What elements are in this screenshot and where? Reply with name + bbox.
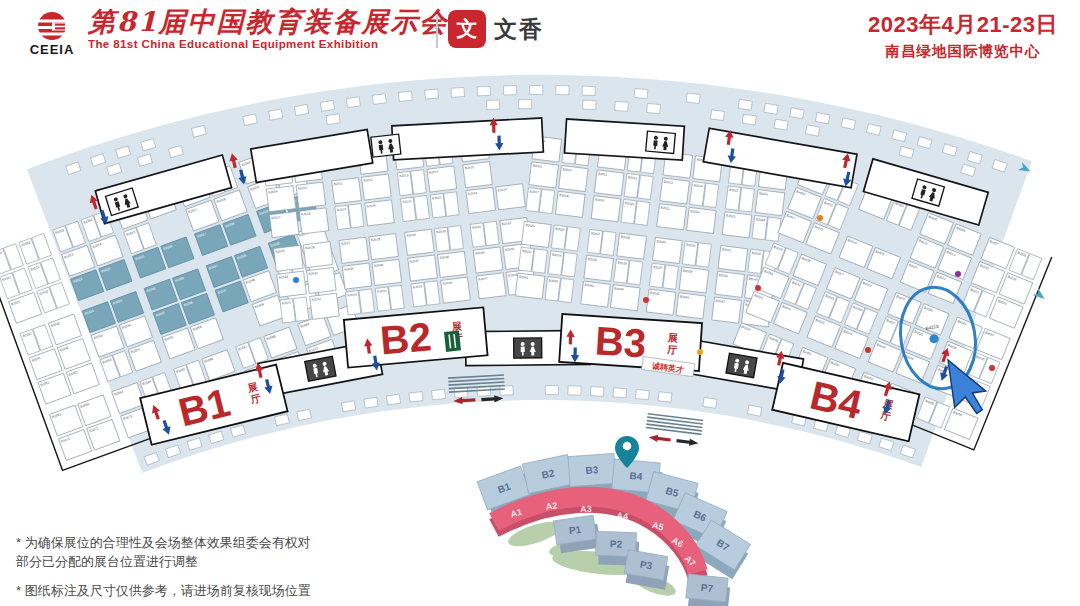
outer-large-booth	[392, 118, 544, 160]
exhibition-title-cn: 第81届中国教育装备展示会	[88, 8, 449, 36]
footnote-1-line1: * 为确保展位的合理性及会场整体效果组委会有权对	[16, 534, 311, 553]
svg-text:B3: B3	[585, 464, 599, 476]
inner-booth-strip	[454, 388, 468, 398]
booth-logo	[755, 285, 761, 291]
outer-booth-strip	[519, 100, 532, 109]
footnote-1-line2: 部分已分配的展台位置进行调整	[16, 553, 311, 572]
svg-text:B3: B3	[594, 318, 648, 365]
inner-booth-strip	[432, 389, 446, 399]
outer-booth-strip	[477, 86, 490, 96]
booth-logo	[989, 365, 995, 371]
exhibition-floorplan-page: CEEIA 第81届中国教育装备展示会 The 81st China Educa…	[0, 0, 1080, 606]
outer-booth-strip	[346, 97, 360, 108]
outer-booth-strip	[320, 100, 334, 111]
exhibition-title-en: The 81st China Educational Equipment Exh…	[88, 38, 449, 50]
booth-logo	[817, 215, 823, 221]
outer-booth-strip	[738, 99, 752, 110]
partner-name: 文香	[494, 14, 544, 45]
outer-booth-strip	[710, 110, 724, 121]
inner-booth-strip	[658, 392, 672, 402]
outer-booth-strip	[326, 114, 340, 125]
booth-logo	[293, 277, 299, 283]
outer-booth-strip	[615, 101, 628, 111]
inner-booth-strip	[500, 386, 513, 395]
overview-minimap: B1B2B3B4B5B6B7A1A2A3A4A5A6A7P1P2P3P7	[440, 430, 820, 606]
header-divider	[436, 16, 438, 48]
inner-booth-strip	[364, 397, 378, 408]
inner-booth-strip	[703, 397, 717, 408]
svg-text:展: 展	[667, 332, 679, 344]
footnotes: * 为确保展位的合理性及会场整体效果组委会有权对 部分已分配的展台位置进行调整 …	[16, 534, 311, 601]
inner-booth-strip	[477, 387, 490, 397]
outer-booth-strip	[582, 86, 595, 95]
minimap-block-P3: P3	[623, 550, 671, 590]
svg-text:P7: P7	[700, 582, 714, 594]
svg-text:P1: P1	[568, 524, 582, 537]
outer-booth-strip	[451, 88, 464, 98]
svg-text:A4: A4	[616, 510, 628, 521]
restroom-icon	[646, 131, 676, 153]
restroom-icon	[305, 356, 336, 381]
restroom-icon	[514, 338, 542, 358]
outer-booth-strip	[530, 85, 543, 94]
outer-booth-strip	[556, 86, 569, 95]
inner-booth-strip	[341, 401, 355, 412]
minimap-block-P1: P1	[554, 515, 601, 554]
booth-logo	[697, 349, 703, 355]
svg-text:B4: B4	[629, 470, 643, 482]
restroom-icon	[371, 134, 401, 157]
booth-logo	[865, 347, 871, 353]
inner-booth-strip	[636, 390, 650, 400]
booth-logo	[955, 271, 961, 277]
wenxiang-logo-icon: 文	[448, 10, 486, 48]
title-block: 第81届中国教育装备展示会 The 81st China Educational…	[88, 8, 449, 50]
outer-booth-strip	[764, 103, 778, 114]
inner-booth-strip	[590, 387, 603, 397]
svg-text:P2: P2	[610, 538, 623, 549]
inner-booth-strip	[613, 388, 627, 398]
booth-logo	[643, 297, 649, 303]
outer-booth-strip	[583, 100, 596, 109]
partner-brand: 文 文香	[448, 10, 544, 48]
svg-text:B2: B2	[378, 314, 433, 362]
outer-booth-strip	[742, 114, 756, 125]
outer-booth-strip	[503, 86, 516, 95]
outer-booth-strip	[686, 93, 700, 103]
event-dates: 2023年4月21-23日	[868, 10, 1058, 40]
footnote-2: * 图纸标注及尺寸仅供参考，请进场前复核现场位置	[16, 582, 311, 601]
inner-booth-strip	[386, 394, 400, 405]
svg-text:A3: A3	[580, 504, 592, 514]
outer-booth-strip	[399, 91, 413, 101]
restroom-icon	[726, 353, 757, 378]
outer-booth-strip	[486, 100, 499, 109]
inner-booth-strip	[545, 385, 558, 394]
ceeia-logo-icon	[29, 10, 75, 44]
outer-booth-strip	[425, 89, 439, 99]
outer-booth-strip	[774, 119, 788, 130]
minimap-block-P7: P7	[685, 574, 731, 606]
outer-booth-strip	[372, 94, 386, 104]
inner-booth-strip	[409, 392, 423, 402]
outer-booth-strip	[647, 104, 661, 114]
green-badge	[444, 330, 461, 351]
outer-booth-strip	[634, 89, 648, 99]
outer-booth-strip	[294, 105, 308, 116]
svg-text:A2: A2	[545, 500, 558, 512]
inner-booth-strip	[568, 386, 581, 395]
svg-text:厅: 厅	[666, 344, 679, 356]
svg-text:P3: P3	[639, 559, 653, 572]
svg-text:展: 展	[450, 320, 462, 332]
